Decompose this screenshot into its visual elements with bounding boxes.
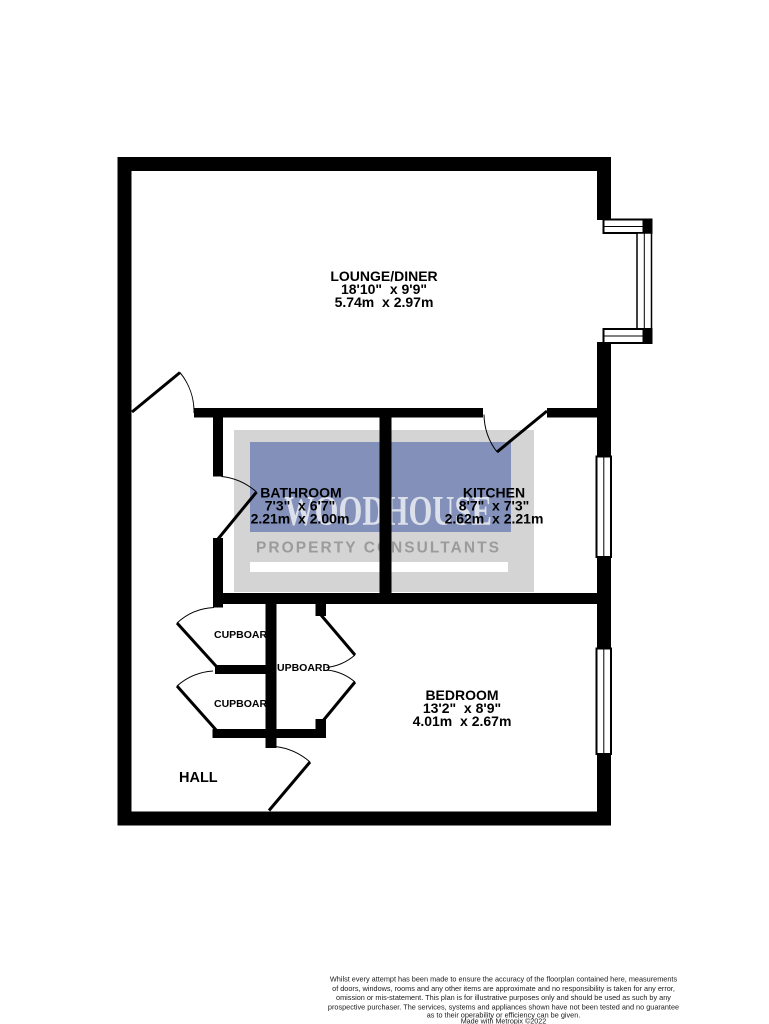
svg-text:omission or mis-statement. Thi: omission or mis-statement. This plan is …: [336, 993, 671, 1002]
svg-text:HALL: HALL: [179, 770, 218, 786]
svg-text:of doors, windows, rooms and a: of doors, windows, rooms and any other i…: [332, 984, 675, 993]
svg-text:Made with Metropix ©2022: Made with Metropix ©2022: [461, 1017, 547, 1024]
svg-text:UPBOARD: UPBOARD: [277, 662, 331, 674]
svg-text:2.21m x 2.00m: 2.21m x 2.00m: [251, 511, 350, 527]
svg-text:PROPERTY CONSULTANTS: PROPERTY CONSULTANTS: [256, 540, 501, 557]
svg-text:5.74m x 2.97m: 5.74m x 2.97m: [335, 294, 434, 310]
svg-text:2.62m x 2.21m: 2.62m x 2.21m: [445, 511, 544, 527]
svg-text:4.01m x 2.67m: 4.01m x 2.67m: [413, 713, 512, 729]
svg-text:Whilst every attempt has been: Whilst every attempt has been made to en…: [330, 975, 678, 984]
